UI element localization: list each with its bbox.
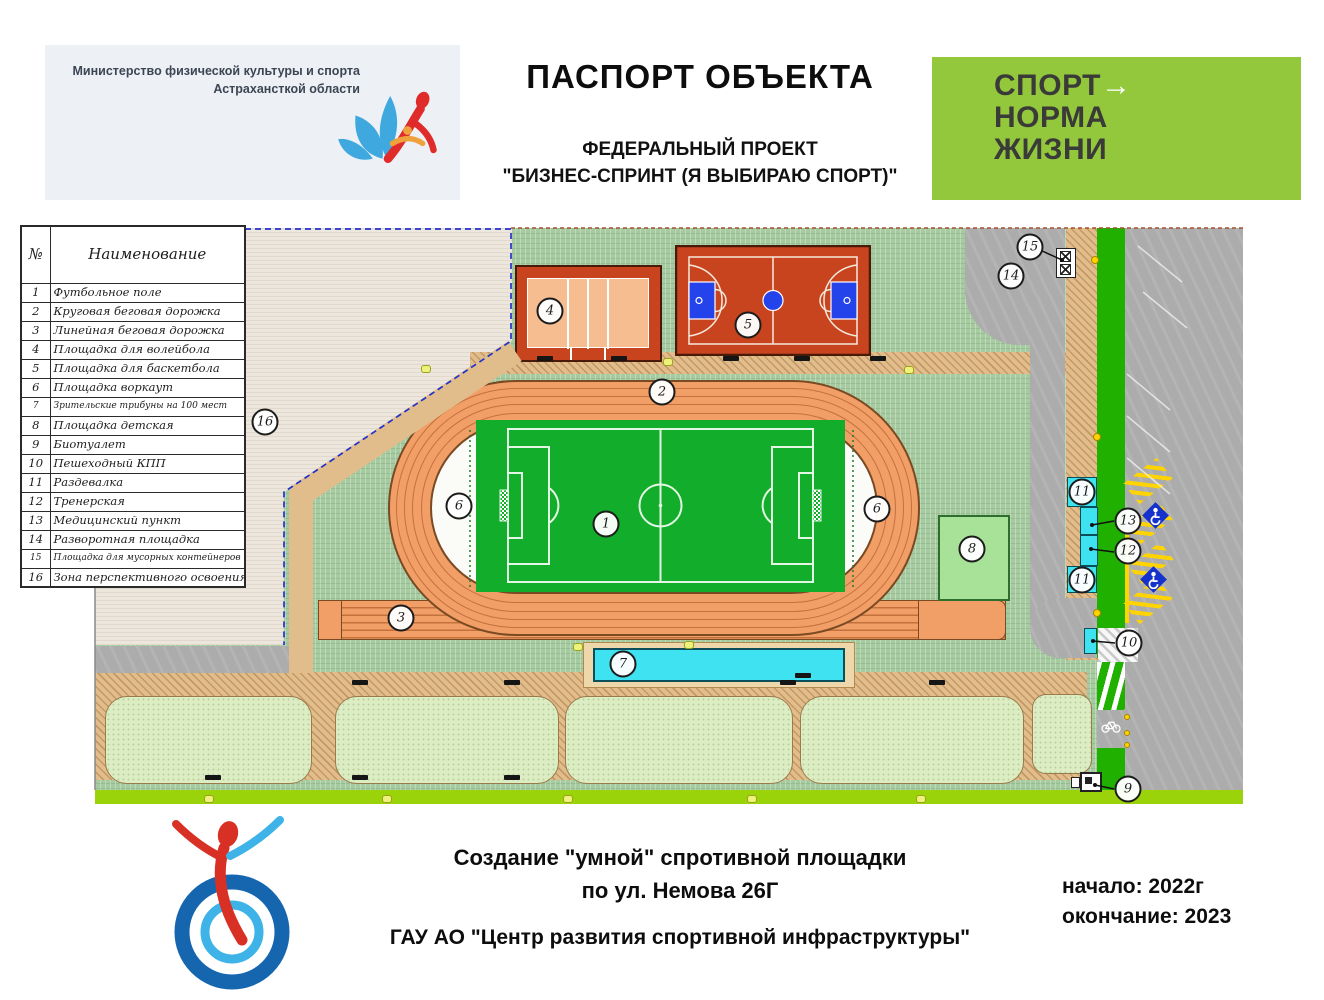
legend-header-row: № Наименование xyxy=(21,226,245,283)
lamp xyxy=(204,795,214,803)
legend-num: 3 xyxy=(21,321,50,340)
legend-label: Площадка воркаут xyxy=(50,378,245,397)
marker-8: 8 xyxy=(959,536,986,563)
marker-dot xyxy=(1124,742,1130,748)
legend-label: Разворотная площадка xyxy=(50,530,245,549)
bench xyxy=(352,775,368,780)
legend-num: 5 xyxy=(21,359,50,378)
bench xyxy=(929,680,945,685)
legend-label: Футбольное поле xyxy=(50,283,245,302)
marker-dot xyxy=(1093,433,1101,441)
bicycle-icon xyxy=(1100,716,1122,734)
legend-num: 2 xyxy=(21,302,50,321)
legend-label: Площадка для волейбола xyxy=(50,340,245,359)
legend-num: 9 xyxy=(21,435,50,454)
legend-row: 2Круговая беговая дорожка xyxy=(21,302,245,321)
lawn-patch xyxy=(105,696,312,784)
marker-16: 16 xyxy=(252,409,279,436)
bench xyxy=(794,356,810,361)
legend-row: 1Футбольное поле xyxy=(21,283,245,302)
marker-dot xyxy=(1091,256,1099,264)
bench xyxy=(780,680,796,685)
bench xyxy=(795,673,811,678)
inner-road-vertical xyxy=(1030,295,1065,625)
marker-7: 7 xyxy=(610,651,637,678)
marker-dot xyxy=(1124,730,1130,736)
legend-label: Медицинский пункт xyxy=(50,511,245,530)
legend-num: 7 xyxy=(21,397,50,416)
lawn-patch xyxy=(565,696,793,784)
legend-row: 3Линейная беговая дорожка xyxy=(21,321,245,340)
legend-label: Площадка для баскетбола xyxy=(50,359,245,378)
legend-num: 15 xyxy=(21,549,50,568)
date-end: окончание: 2023 xyxy=(1062,902,1231,932)
legend-row: 12Тренерская xyxy=(21,492,245,511)
legend-num: 4 xyxy=(21,340,50,359)
legend-table: № Наименование 1Футбольное поле 2Кругова… xyxy=(20,225,246,588)
bench xyxy=(504,680,520,685)
volleyball-line xyxy=(607,279,609,349)
medical-box xyxy=(1080,507,1098,535)
bench xyxy=(611,356,627,361)
legend-label: Зрительские трибуны на 100 мест xyxy=(50,397,245,416)
date-start: начало: 2022г xyxy=(1062,872,1231,902)
legend-label: Площадка детская xyxy=(50,416,245,435)
legend-col-num: № xyxy=(21,226,50,283)
legend-num: 13 xyxy=(21,511,50,530)
legend-num: 11 xyxy=(21,473,50,492)
lawn-patch xyxy=(1032,694,1092,774)
bench xyxy=(537,356,553,361)
linear-track-block-right xyxy=(918,600,1006,640)
football-field xyxy=(476,420,845,592)
bench xyxy=(352,680,368,685)
basketball-court xyxy=(675,245,871,356)
legend-row: 10Пешеходный КПП xyxy=(21,454,245,473)
path-right-band xyxy=(1066,228,1098,660)
legend-num: 12 xyxy=(21,492,50,511)
marker-11-lower: 11 xyxy=(1069,567,1096,594)
bench xyxy=(205,775,221,780)
road-right xyxy=(1125,228,1243,790)
project-dates: начало: 2022г окончание: 2023 xyxy=(1062,872,1231,933)
legend-row: 11Раздевалка xyxy=(21,473,245,492)
marker-13: 13 xyxy=(1115,508,1142,535)
legend-num: 6 xyxy=(21,378,50,397)
legend-label: Биотуалет xyxy=(50,435,245,454)
crosswalk xyxy=(1097,662,1125,710)
marker-6-left: 6 xyxy=(446,493,473,520)
legend-col-name: Наименование xyxy=(50,226,245,283)
lime-strip xyxy=(95,790,1243,804)
lamp xyxy=(684,641,694,649)
volleyball-line xyxy=(604,348,606,360)
legend-row: 14Разворотная площадка xyxy=(21,530,245,549)
marker-12: 12 xyxy=(1115,538,1142,565)
legend-num: 1 xyxy=(21,283,50,302)
project-org: ГАУ АО "Центр развития спортивной инфрас… xyxy=(340,926,1020,950)
legend-row: 4Площадка для волейбола xyxy=(21,340,245,359)
lamp xyxy=(916,795,926,803)
marker-10: 10 xyxy=(1116,630,1143,657)
marker-3: 3 xyxy=(388,605,415,632)
marker-9: 9 xyxy=(1115,776,1142,803)
bench xyxy=(870,356,886,361)
legend-row: 15Площадка для мусорных контейнеров xyxy=(21,549,245,568)
legend-row: 13Медицинский пункт xyxy=(21,511,245,530)
marker-1: 1 xyxy=(593,511,620,538)
handicap-parking-sign-icon xyxy=(1140,566,1167,593)
trash-containers-box xyxy=(1056,248,1076,278)
project-line2: по ул. Немова 26Г xyxy=(340,878,1020,904)
lamp xyxy=(663,358,673,366)
lamp xyxy=(563,795,573,803)
handicap-parking-sign-icon xyxy=(1142,502,1169,529)
marker-11-upper: 11 xyxy=(1069,479,1096,506)
marker-15: 15 xyxy=(1017,234,1044,261)
legend-label: Линейная беговая дорожка xyxy=(50,321,245,340)
legend-num: 10 xyxy=(21,454,50,473)
legend-row: 5Площадка для баскетбола xyxy=(21,359,245,378)
trash-container-icon xyxy=(1060,264,1071,275)
lamp xyxy=(382,795,392,803)
legend-num: 14 xyxy=(21,530,50,549)
lamp xyxy=(904,366,914,374)
project-description: Создание "умной" спротивной площадки по … xyxy=(340,845,1020,950)
volleyball-line xyxy=(567,279,569,349)
legend-label: Пешеходный КПП xyxy=(50,454,245,473)
bio-toilet-annex xyxy=(1071,777,1080,788)
marker-dot xyxy=(1124,714,1130,720)
marker-14: 14 xyxy=(998,263,1025,290)
legend-label: Площадка для мусорных контейнеров xyxy=(50,549,245,568)
legend-num: 8 xyxy=(21,416,50,435)
lamp xyxy=(747,795,757,803)
trash-container-icon xyxy=(1060,251,1071,262)
legend-label: Тренерская xyxy=(50,492,245,511)
lamp xyxy=(573,643,583,651)
lamp xyxy=(421,365,431,373)
legend-row: 6Площадка воркаут xyxy=(21,378,245,397)
trainer-box xyxy=(1080,535,1098,566)
marker-5: 5 xyxy=(735,312,762,339)
marker-4: 4 xyxy=(537,298,564,325)
volleyball-line xyxy=(587,279,589,349)
lawn-patch xyxy=(335,696,559,784)
bio-toilet-icon xyxy=(1085,777,1092,784)
center-development-logo-icon xyxy=(150,810,310,1000)
legend-label: Раздевалка xyxy=(50,473,245,492)
pedestrian-kpp-box xyxy=(1084,628,1097,654)
marker-6-right: 6 xyxy=(864,496,891,523)
marker-dot xyxy=(1093,609,1101,617)
bench xyxy=(723,356,739,361)
legend-num: 16 xyxy=(21,568,50,587)
green-strip xyxy=(1097,228,1125,658)
bio-toilet-box xyxy=(1080,772,1102,792)
road-stub-left xyxy=(95,646,295,673)
lawn-patch xyxy=(800,696,1024,784)
legend-row: 16Зона перспективного освоения xyxy=(21,568,245,587)
legend-label: Зона перспективного освоения xyxy=(50,568,245,587)
legend-row: 7Зрительские трибуны на 100 мест xyxy=(21,397,245,416)
marker-2: 2 xyxy=(649,379,676,406)
project-line1: Создание "умной" спротивной площадки xyxy=(340,845,1020,871)
legend-label: Круговая беговая дорожка xyxy=(50,302,245,321)
volleyball-line xyxy=(570,348,572,360)
bench xyxy=(504,775,520,780)
linear-track-cap-left xyxy=(318,600,342,640)
legend-row: 8Площадка детская xyxy=(21,416,245,435)
legend-row: 9Биотуалет xyxy=(21,435,245,454)
